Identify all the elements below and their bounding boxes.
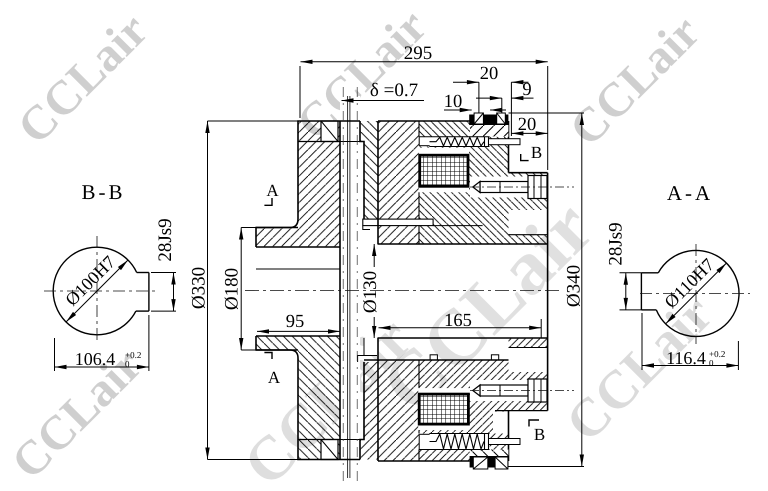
svg-text:B-B: B-B	[81, 180, 125, 204]
svg-text:295: 295	[404, 43, 433, 64]
svg-text:B: B	[534, 425, 545, 444]
svg-text:Ø130: Ø130	[360, 271, 381, 313]
svg-text:9: 9	[522, 80, 531, 100]
svg-text:δ =0.7: δ =0.7	[370, 80, 418, 101]
svg-text:A: A	[268, 368, 281, 387]
svg-text:28Js9: 28Js9	[606, 222, 627, 265]
svg-text:20: 20	[480, 64, 499, 84]
svg-text:B: B	[531, 143, 542, 162]
svg-text:Ø330: Ø330	[189, 267, 210, 309]
svg-text:A-A: A-A	[667, 181, 713, 205]
svg-text:10: 10	[444, 92, 463, 112]
svg-text:116.4: 116.4	[666, 348, 706, 368]
svg-text:28Js9: 28Js9	[155, 218, 176, 261]
svg-text:95: 95	[286, 312, 305, 332]
svg-text:106.4: 106.4	[75, 349, 116, 369]
svg-text:A: A	[266, 181, 279, 200]
svg-text:Ø180: Ø180	[222, 268, 243, 310]
svg-text:0: 0	[709, 358, 714, 368]
svg-text:0: 0	[125, 359, 130, 369]
